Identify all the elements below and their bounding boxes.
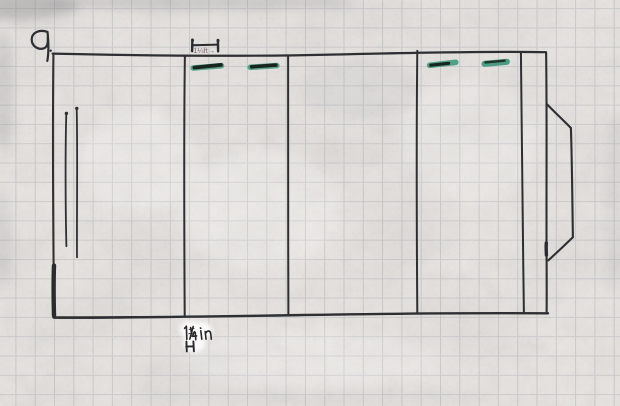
svg-text:1¼ft→: 1¼ft→ [193, 46, 215, 55]
